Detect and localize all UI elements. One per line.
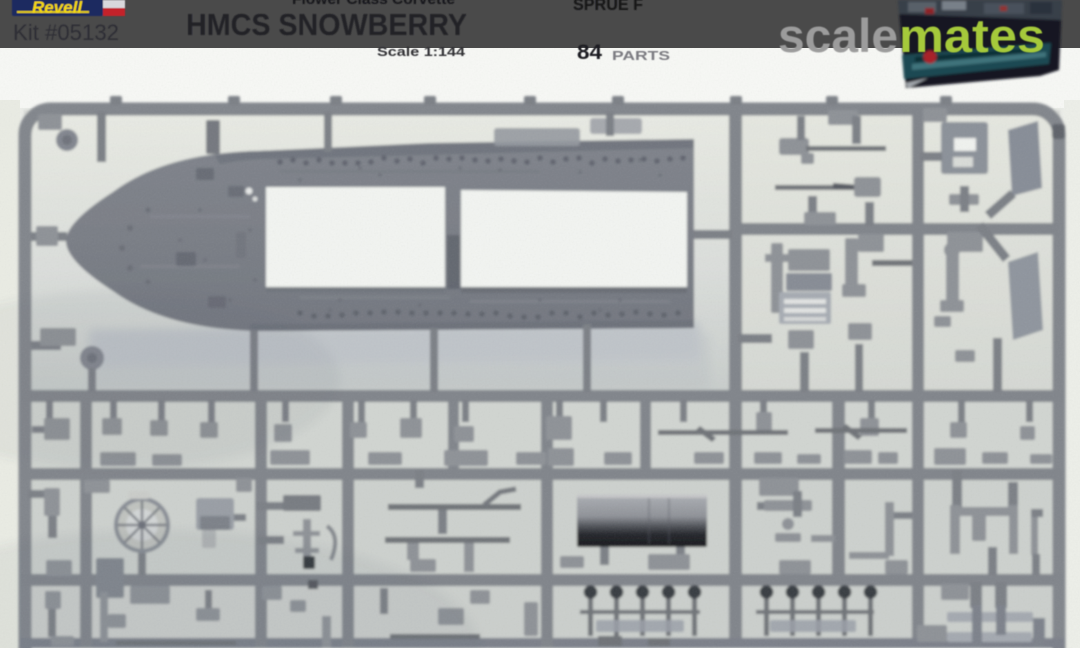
svg-text:84: 84 [577, 41, 602, 64]
svg-text:PARTS: PARTS [612, 49, 670, 63]
svg-text:SPRUE F: SPRUE F [573, 0, 643, 14]
svg-text:scale: scale [778, 9, 898, 62]
svg-text:Scale 1:144: Scale 1:144 [377, 45, 465, 59]
svg-text:Kit #05132: Kit #05132 [13, 20, 119, 45]
svg-text:mates: mates [899, 9, 1045, 62]
svg-text:HMCS SNOWBERRY: HMCS SNOWBERRY [186, 7, 467, 42]
svg-text:Revell: Revell [32, 0, 83, 17]
